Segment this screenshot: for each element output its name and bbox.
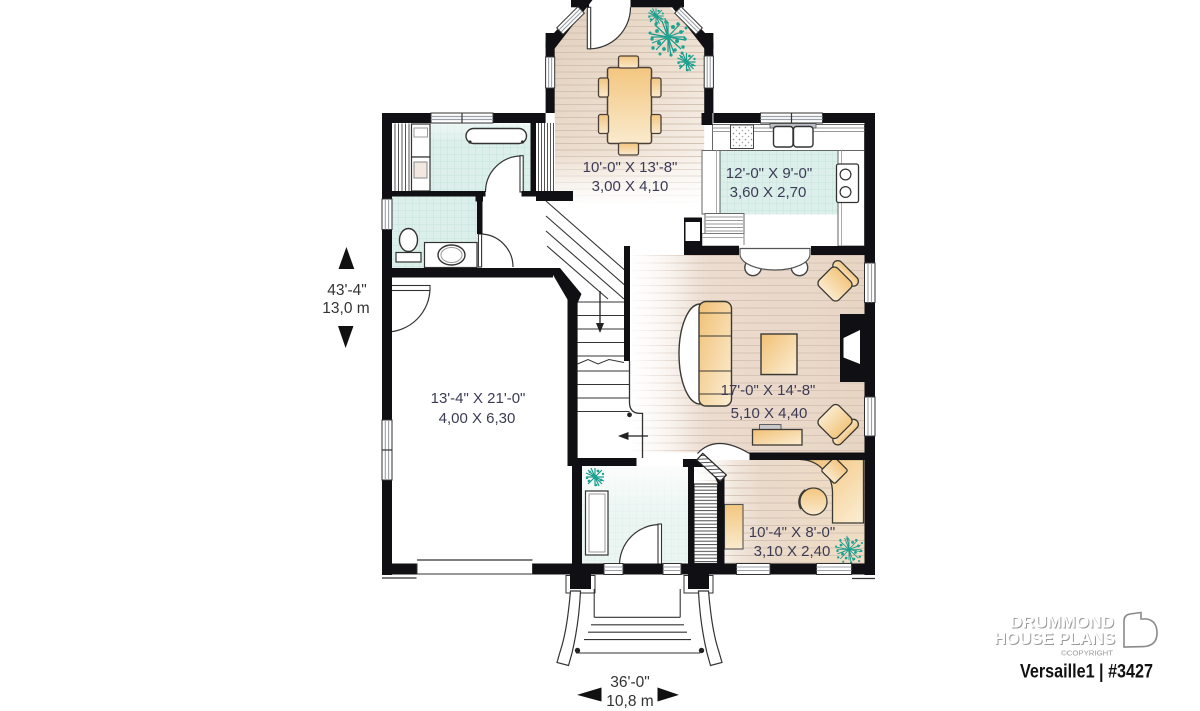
svg-text:3,00 X 4,10: 3,00 X 4,10	[592, 178, 669, 195]
svg-text:5,10 X 4,40: 5,10 X 4,40	[731, 405, 808, 422]
svg-text:13'-4" X 21'-0": 13'-4" X 21'-0"	[431, 390, 526, 407]
svg-text:10'-0" X 13'-8": 10'-0" X 13'-8"	[583, 159, 678, 176]
svg-text:3,10 X 2,40: 3,10 X 2,40	[754, 543, 831, 560]
svg-text:17'-0" X 14'-8": 17'-0" X 14'-8"	[721, 382, 816, 399]
svg-text:13,0 m: 13,0 m	[322, 300, 369, 317]
svg-text:43'-4": 43'-4"	[327, 282, 366, 299]
svg-text:3,60 X 2,70: 3,60 X 2,70	[730, 184, 807, 201]
svg-text:12'-0" X 9'-0": 12'-0" X 9'-0"	[726, 165, 812, 182]
svg-text:4,00 X 6,30: 4,00 X 6,30	[439, 410, 516, 427]
svg-text:10'-4" X 8'-0": 10'-4" X 8'-0"	[749, 524, 835, 541]
svg-text:10,8 m: 10,8 m	[606, 693, 653, 710]
svg-text:Versaille1 | #3427: Versaille1 | #3427	[1020, 662, 1153, 683]
svg-text:HOUSE PLANS: HOUSE PLANS	[994, 629, 1115, 648]
svg-text:36'-0": 36'-0"	[610, 674, 649, 691]
svg-text:©COPYRIGHT: ©COPYRIGHT	[1061, 649, 1113, 658]
